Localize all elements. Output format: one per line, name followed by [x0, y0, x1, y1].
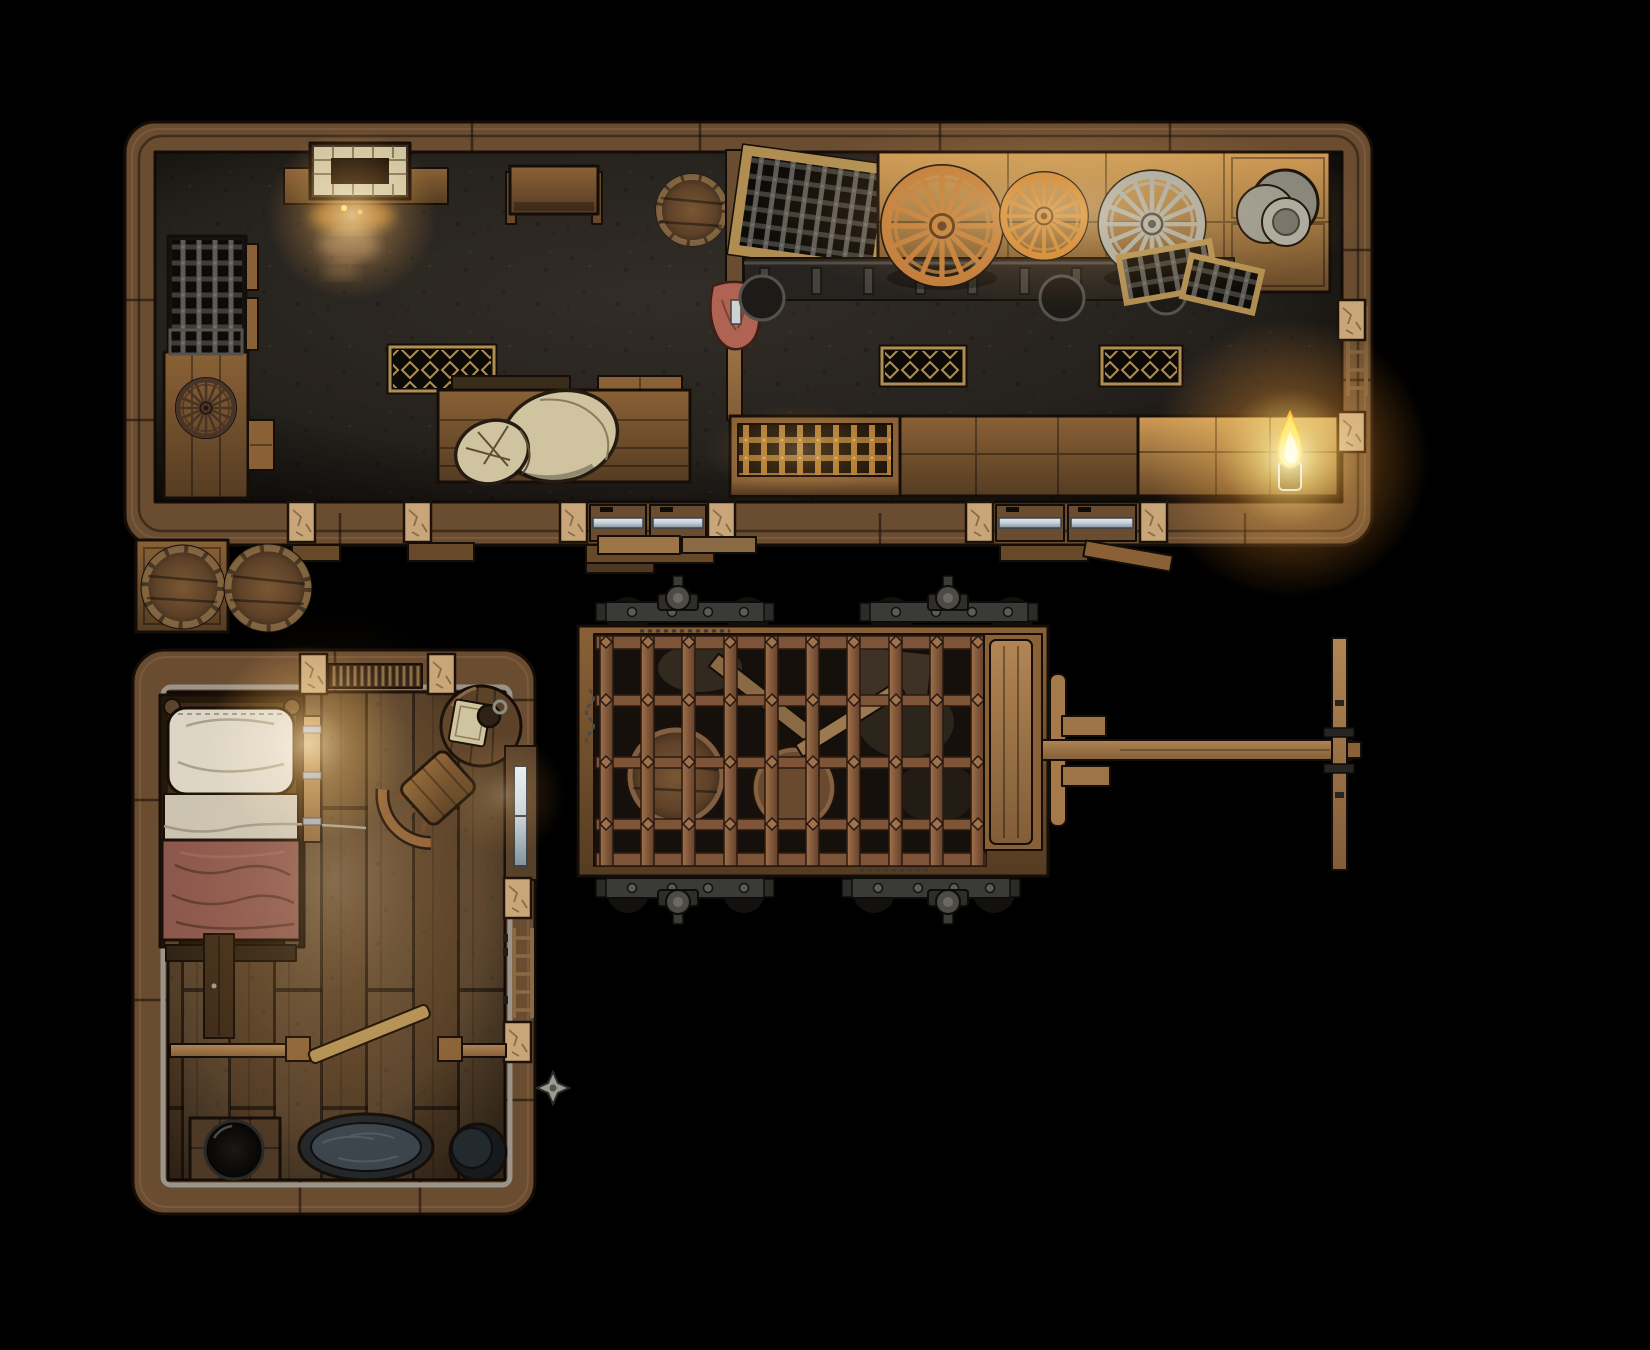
crate-bench	[900, 416, 1138, 496]
forge-smoke	[319, 229, 379, 261]
wall-pillar-4	[504, 1022, 531, 1062]
spare-wheel-dark	[176, 378, 236, 438]
floor-grate-east	[1100, 346, 1182, 386]
loose-planks	[598, 536, 756, 554]
floor-grate-mid	[880, 346, 966, 386]
battlemap-canvas[interactable]: Wheelwright's workshop — top-down fantas…	[0, 0, 1650, 1350]
yard-barrels	[136, 540, 311, 632]
assembly-table	[438, 376, 690, 494]
lamp-glow	[1150, 318, 1430, 598]
cage	[586, 631, 986, 870]
small-table	[506, 166, 602, 224]
battlemap-stage[interactable]: Wheelwright's workshop — top-down fantas…	[0, 0, 1650, 1350]
iron-pot	[205, 1121, 263, 1179]
basin	[450, 1124, 506, 1180]
water-barrel	[657, 175, 727, 245]
barrel-1	[142, 546, 224, 628]
